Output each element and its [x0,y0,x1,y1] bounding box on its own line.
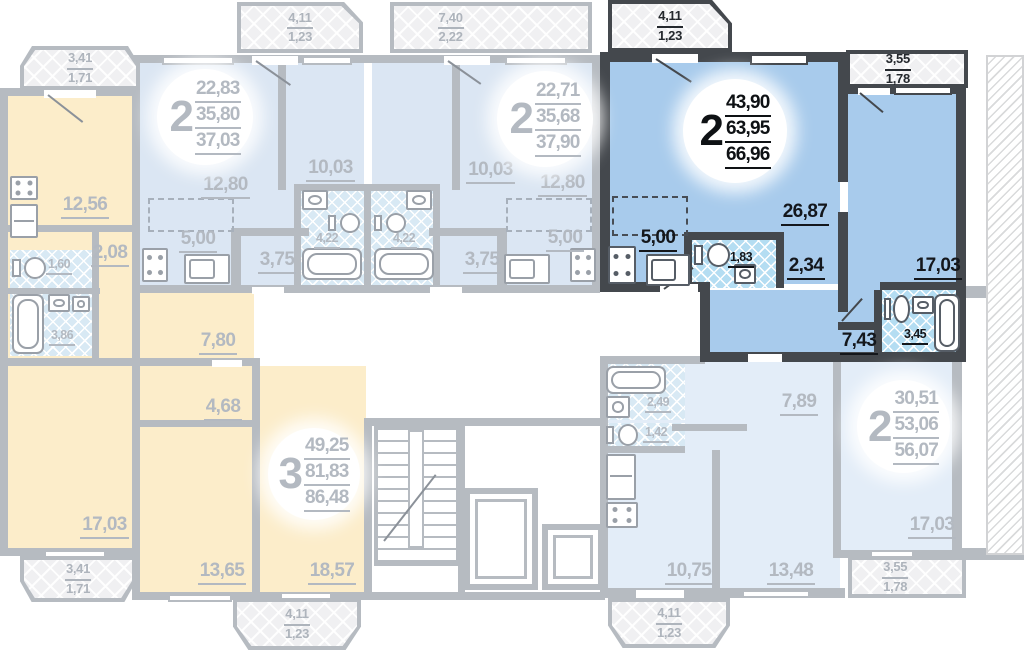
apartment-summary-top-center: 2 22,71 35,68 37,90 [497,71,593,167]
room-area-label: 4,68 [183,397,263,416]
room-area-label: 5,00 [620,228,696,247]
stove-icon [606,502,638,528]
room-area-label: 7,80 [178,331,258,350]
floor-plan: 12,56 2,08 1,60 3,86 7,80 4,68 17,03 13,… [0,0,1024,653]
balcony: 4,111,23 [608,598,730,648]
living-area: 22,71 [535,80,581,105]
window [168,594,232,602]
window [302,56,352,65]
room-area-label: 13,65 [178,561,266,580]
elevator [542,524,604,590]
wall-dark [700,352,966,362]
entrance-gap [212,360,242,367]
bathtub-icon [374,248,434,280]
window [505,56,567,65]
window [742,590,810,598]
room-area-label: 10,75 [643,561,735,580]
wall [132,420,258,427]
wall [368,418,605,426]
apartment-area: 35,68 [535,106,581,131]
stove-icon [10,176,38,200]
sink-icon [72,296,90,312]
apartment-summary-highlighted[interactable]: 2 43,90 63,95 66,96 [683,79,787,183]
room-area-label: 1,83 [721,251,761,264]
room-area-label: 26,87 [763,202,847,221]
wall [0,88,8,556]
stove-icon [570,248,596,282]
entrance-gap [748,354,782,362]
fridge-icon [10,204,38,238]
window [162,56,234,65]
sink-icon [302,190,328,210]
wall-dark [600,52,848,62]
room-area-label: 3,86 [38,329,86,342]
kitchen-niche-dashed [148,198,234,232]
room-area-label: 12,80 [183,175,268,194]
apartment-summary-bottom-right: 2 30,51 53,06 56,07 [857,380,950,473]
adjacent-section-hatch [986,55,1024,555]
stove-icon [608,246,636,284]
bathtub-icon [12,294,44,354]
balcony-highlighted: 3,551,78 [846,50,968,88]
room-area-label: 5,00 [160,229,236,248]
balcony-highlighted: 4,111,23 [608,0,732,52]
living-area: 22,83 [195,78,241,103]
apartment-summary-top-left: 2 22,83 35,80 37,03 [157,69,253,165]
room-area-label: 1,42 [630,426,682,439]
apartment-summary-bottom-left: 3 49,25 81,83 86,48 [268,428,360,520]
wall [433,184,440,290]
apartment-area: 81,83 [304,461,350,486]
window [750,54,808,65]
sink-icon [912,296,934,314]
room-area-label: 17,03 [62,515,147,534]
wall [605,356,705,364]
balcony: 4,111,23 [237,2,363,53]
rooms-count: 2 [699,106,721,156]
toilet-icon [884,294,910,324]
room-area-label: 10,03 [288,158,373,177]
living-area: 30,51 [893,388,939,413]
sink-icon [606,396,630,418]
room-area-label: 12,56 [45,195,125,214]
room-area-label: 17,03 [890,515,974,534]
balcony: 3,551,78 [848,556,966,598]
wall [605,446,685,453]
wall [294,184,301,290]
room-area-label: 12,80 [520,173,605,192]
wall [672,424,747,431]
room-area-label: 2,34 [768,256,844,275]
balcony: 7,402,22 [390,2,592,53]
total-area: 37,90 [535,132,581,157]
rooms-count: 2 [509,94,531,144]
rooms-count: 3 [278,449,300,499]
living-area: 43,90 [725,92,771,117]
kitchen-sink-icon [184,254,230,284]
room-area-label: 1,60 [36,258,82,271]
room-area-label: 3,75 [239,250,315,269]
bathtub-icon [606,366,666,394]
total-area: 86,48 [304,487,350,512]
wall-dark [684,232,784,240]
room-area-label: 7,89 [758,392,840,411]
room-area-label: 2,49 [630,396,686,409]
wall [132,55,140,310]
room-area-label: 4,22 [382,232,426,245]
elevator [464,488,538,590]
room-area-label: 2,08 [72,243,148,262]
kitchen-sink-icon [646,254,690,286]
apartment-area: 63,95 [725,118,771,143]
wall-dark [700,282,710,362]
apartment-area: 35,80 [195,104,241,129]
room-area-label: 18,57 [288,561,376,580]
balcony: 3,411,71 [20,556,136,602]
wall [364,184,371,290]
sink-icon [406,190,432,210]
total-area: 37,03 [195,130,241,155]
room-area-label: 3,45 [893,328,937,341]
entrance-gap [430,287,462,294]
living-area: 49,25 [304,435,350,460]
total-area: 56,07 [893,440,939,465]
room-area-label: 5,00 [526,228,604,247]
balcony: 4,111,23 [233,598,361,650]
room-area-label: 13,48 [744,561,838,580]
apartment-area: 53,06 [893,414,939,439]
door-gap [636,590,684,598]
total-area: 66,96 [725,144,771,169]
wall-dark [838,322,882,330]
entrance-gap [252,287,284,294]
bathtub-icon [934,294,960,352]
rooms-count: 2 [868,402,890,452]
room-area-label: 17,03 [896,256,980,275]
wall [429,228,507,236]
sink-icon [48,294,70,312]
room-area-label: 3,75 [444,250,520,269]
room-area-label: 7,43 [819,331,899,350]
rooms-count: 2 [169,92,191,142]
wall-dark [880,282,966,290]
room-area-label: 4,22 [305,232,349,245]
fridge-icon [606,454,636,500]
balcony: 3,411,71 [20,46,140,90]
